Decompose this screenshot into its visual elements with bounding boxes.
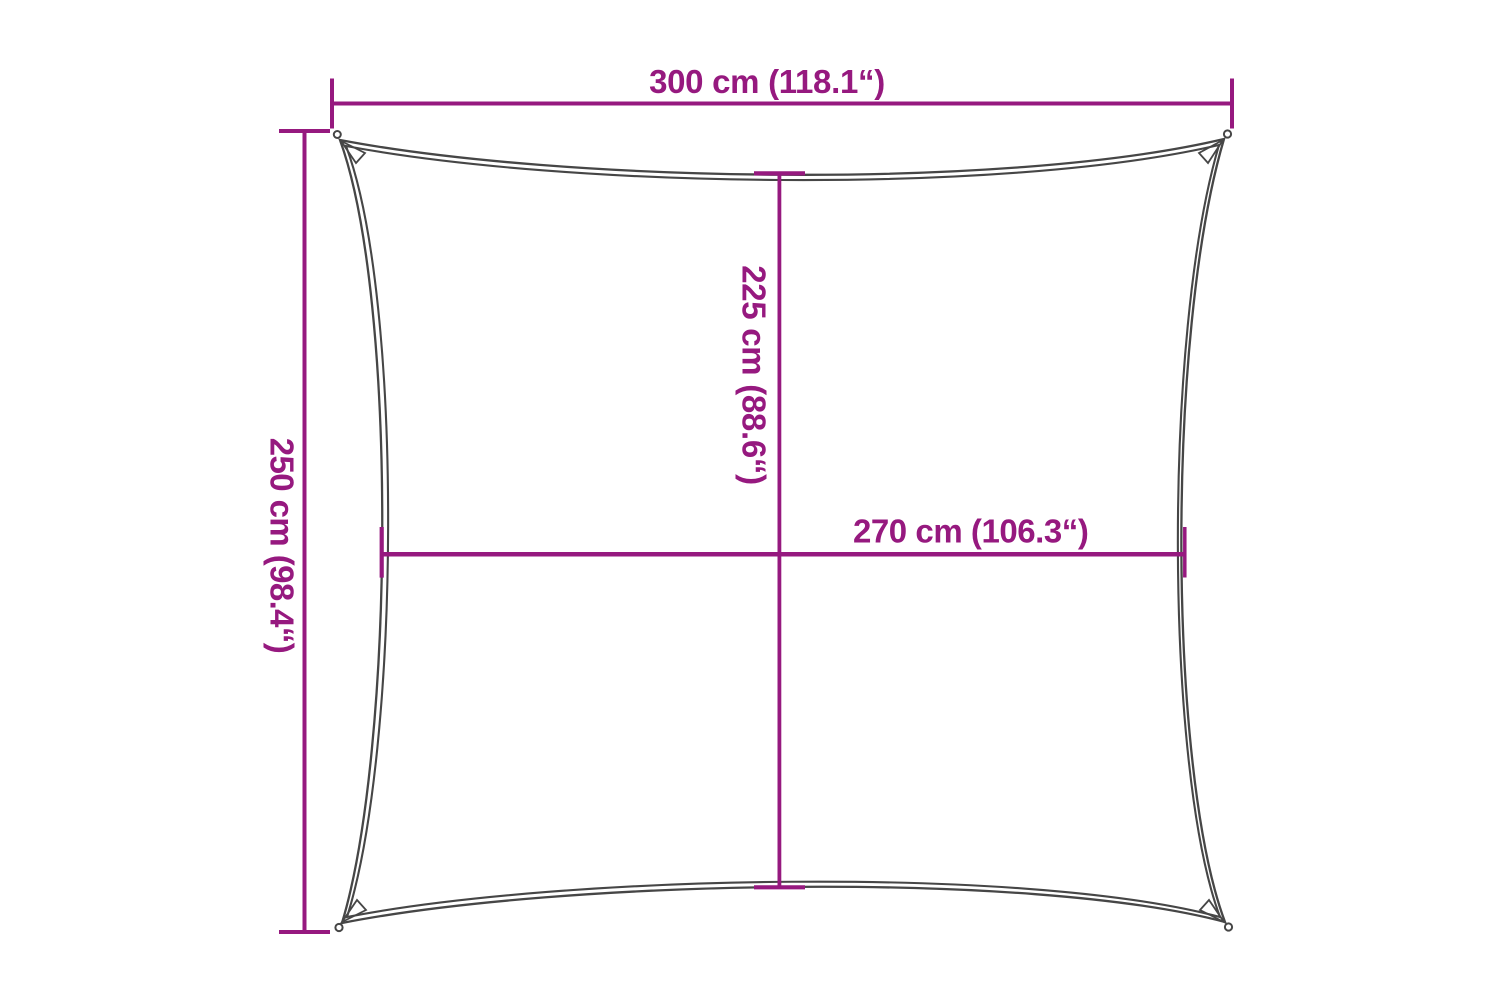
svg-text:300 cm (118.1“): 300 cm (118.1“) [649, 63, 885, 100]
svg-text:270 cm (106.3“): 270 cm (106.3“) [853, 513, 1088, 550]
svg-text:225 cm (88.6“): 225 cm (88.6“) [736, 265, 773, 485]
svg-text:250 cm (98.4“): 250 cm (98.4“) [264, 438, 301, 653]
